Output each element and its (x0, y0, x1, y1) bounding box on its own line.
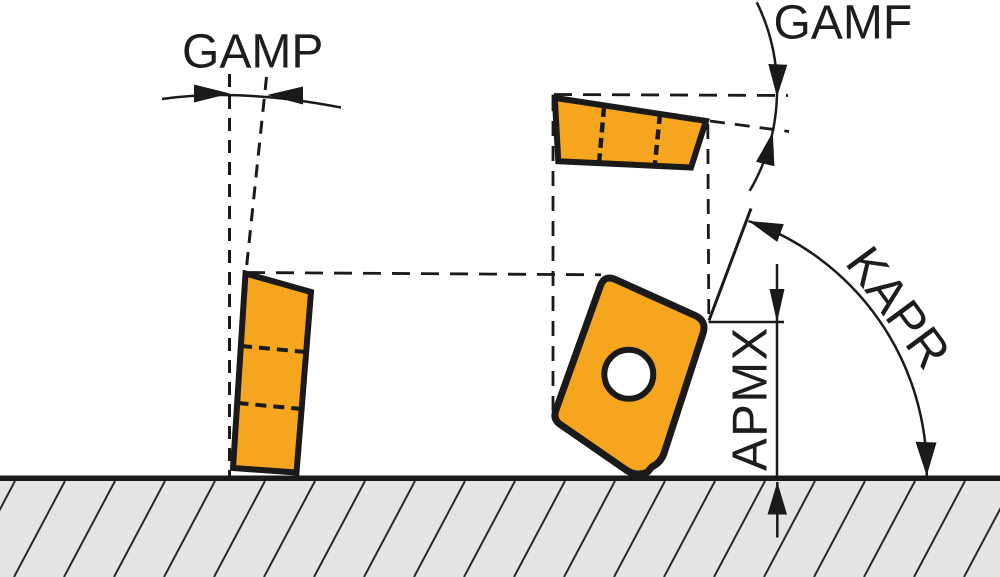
svg-text:APMX: APMX (724, 326, 778, 471)
svg-text:KAPR: KAPR (835, 236, 961, 379)
svg-text:GAMF: GAMF (774, 0, 913, 50)
svg-text:GAMP: GAMP (182, 26, 323, 79)
